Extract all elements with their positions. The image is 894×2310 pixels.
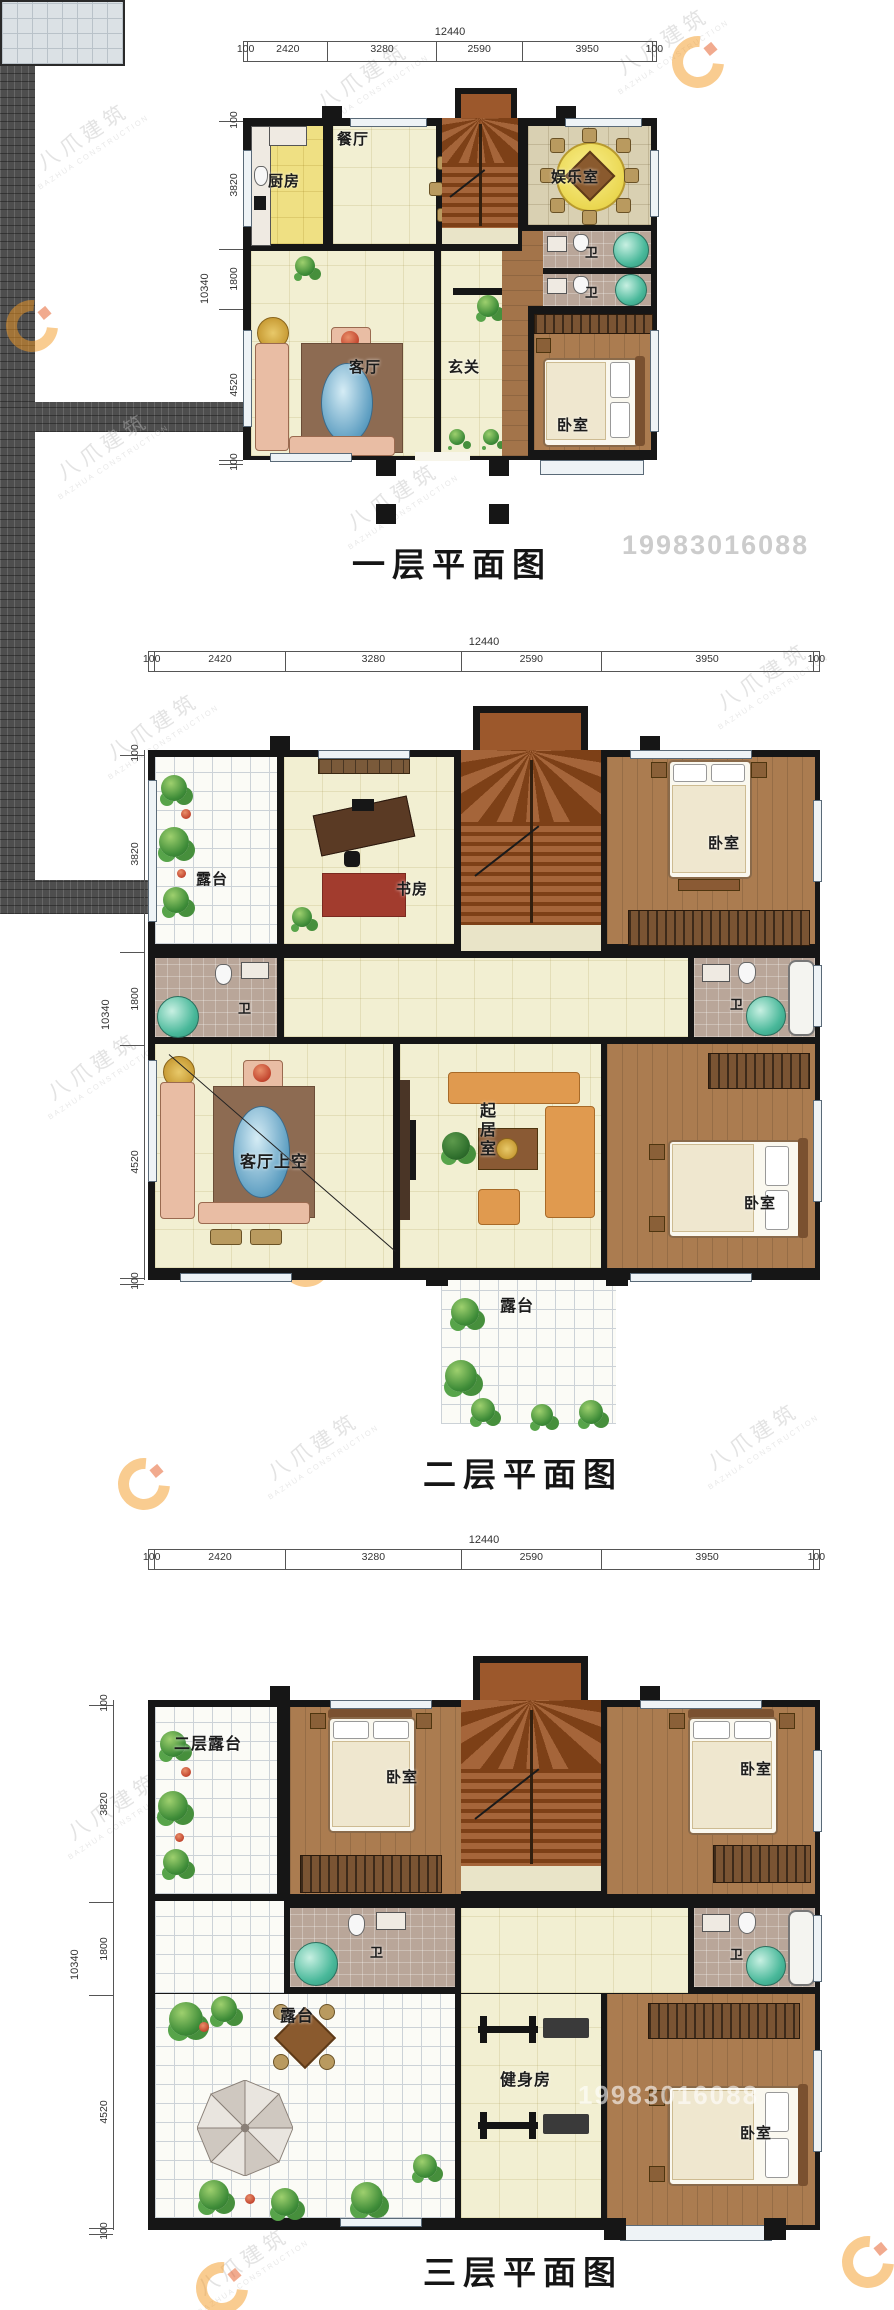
chair [616, 138, 631, 153]
bed-blanket [672, 785, 746, 873]
chair [550, 198, 565, 213]
label-living: 客厅 [349, 356, 381, 377]
corridor-wood [502, 251, 528, 456]
floor2-plan: 露台 书房 卧室 卫 卫 客厅上空 起居室 卧室 [148, 750, 820, 1280]
label-study: 书房 [396, 878, 428, 899]
gym-plate [529, 2016, 536, 2043]
bathtub [788, 960, 815, 1036]
hallway [284, 958, 688, 1037]
watermark-brand: 八爪建筑BAZHUA CONSTRUCTION [20, 88, 151, 192]
sofa-top [448, 1072, 580, 1104]
dim-seg: 1800 [219, 250, 243, 311]
room-bedroom [534, 314, 651, 450]
pillow [673, 764, 707, 782]
floor2-left-dimensions: 10340 100 3820 1800 4520 100 [120, 750, 145, 1280]
terrace-plants [159, 827, 189, 857]
chair [582, 210, 597, 225]
dim-seg: 3280 [286, 1550, 462, 1569]
dim-total-width: 12440 [243, 26, 657, 42]
nightstand [649, 2166, 665, 2182]
kitchen-sink [254, 166, 268, 186]
floor3-left-dimensions: 10340 100 3820 1800 4520 100 [89, 1700, 114, 2230]
desk-monitor [352, 799, 374, 811]
dim-seg: 3950 [602, 652, 814, 671]
label-gym: 健身房 [500, 2066, 551, 2090]
stairs [461, 1700, 601, 1891]
bathtub [788, 1910, 815, 1986]
flowers [245, 2194, 255, 2204]
window [813, 1750, 822, 1832]
toilet [738, 1912, 756, 1934]
pillow [734, 1721, 771, 1739]
room-foyer [441, 251, 502, 456]
terrace-plants [413, 2154, 437, 2178]
window [813, 2050, 822, 2152]
terrace-plants [271, 2188, 299, 2216]
ottoman [250, 1229, 282, 1245]
sofa-left [160, 1082, 195, 1219]
ottoman [210, 1229, 242, 1245]
sofa-bottom [198, 1202, 310, 1224]
dim-seg: 2420 [155, 1550, 285, 1569]
nightstand [416, 1713, 432, 1729]
bath-vanity [547, 236, 567, 252]
window [813, 800, 822, 882]
window [270, 453, 352, 462]
nightstand [751, 762, 767, 778]
pillow [610, 402, 630, 438]
wardrobe [713, 1845, 811, 1883]
watermark-logo [661, 25, 734, 98]
table-decor [496, 1138, 518, 1160]
bath-vanity [702, 1914, 730, 1932]
plant [292, 907, 312, 927]
terrace-plants [351, 2182, 383, 2214]
dim-seg: 100 [814, 652, 820, 671]
flowers [175, 1833, 184, 1842]
sofa-right [545, 1106, 595, 1218]
dim-seg: 100 [120, 1279, 144, 1285]
label-dining: 餐厅 [337, 128, 369, 149]
porch-pillar [489, 456, 509, 476]
room-living-hall [251, 251, 434, 456]
dim-total-height: 10340 [100, 750, 112, 1280]
window [813, 1915, 822, 1982]
armchair [478, 1189, 520, 1225]
dim-seg: 100 [89, 2229, 113, 2235]
window [148, 1060, 157, 1182]
terrace-plants [161, 775, 187, 801]
watermark-brand: 八爪建筑BAZHUA CONSTRUCTION [250, 1398, 381, 1502]
dim-seg: 4520 [219, 310, 243, 460]
floor3-plan: 二层露台 卧室 卧室 卫 卫 露台 健身房 卧室 [148, 1700, 820, 2230]
watermark-logo [831, 2225, 894, 2298]
dim-seg: 4520 [120, 1046, 144, 1279]
outdoor-chair [319, 2054, 335, 2070]
toilet [738, 962, 756, 984]
wardrobe [534, 314, 653, 334]
pillow [373, 1721, 409, 1739]
room-bath-left [155, 958, 277, 1037]
label-bedroom-top-center: 卧室 [386, 1766, 418, 1787]
bedroom-window-bay [620, 2225, 772, 2241]
flowers [181, 809, 191, 819]
nightstand [649, 1216, 665, 1232]
label-foyer: 玄关 [448, 356, 480, 377]
dim-seg: 1800 [89, 1903, 113, 1996]
outdoor-chair [273, 2054, 289, 2070]
pilaster [604, 2218, 626, 2240]
tree [483, 429, 499, 445]
chair [582, 128, 597, 143]
porch-pillar [489, 504, 509, 524]
nightstand [651, 762, 667, 778]
floor1-left-dimensions: 10340 100 3820 1800 4520 100 [219, 118, 244, 460]
headboard [798, 1138, 808, 1238]
terrace-plants [451, 1298, 479, 1326]
watermark-logo-dot [149, 1464, 163, 1478]
porch-pillar [376, 456, 396, 476]
floor2-title: 二层平面图 [423, 1448, 623, 1496]
window [630, 1273, 752, 1282]
stair-landing [461, 1866, 601, 1891]
watermark-logo [185, 2251, 258, 2310]
nightstand [779, 1713, 795, 1729]
bath-vanity [702, 964, 730, 982]
pilaster [606, 1268, 628, 1286]
window [350, 118, 427, 127]
watermark-brand: 八爪建筑BAZHUA CONSTRUCTION [690, 1388, 821, 1492]
window [650, 150, 659, 217]
shower [746, 1946, 786, 1986]
kitchen-stove [254, 196, 266, 210]
terrace-plants [163, 1849, 189, 1875]
label-entertainment: 娱乐室 [551, 166, 599, 187]
floor1-title: 一层平面图 [352, 538, 552, 586]
window [650, 330, 659, 432]
window [243, 150, 252, 227]
label-bedroom-top-right: 卧室 [740, 1758, 772, 1779]
flowers [181, 1767, 191, 1777]
entrance-porch [0, 0, 125, 66]
wardrobe [708, 1053, 810, 1089]
roof-tiles [0, 432, 35, 880]
tv [410, 1120, 416, 1180]
bath-vanity [241, 962, 269, 979]
dim-seg: 2590 [437, 42, 523, 61]
stair-rail [530, 760, 533, 923]
entrance-door-opening [415, 452, 470, 461]
dim-seg: 3820 [89, 1706, 113, 1903]
dim-total-width: 12440 [148, 636, 820, 652]
stairs-top-landing [480, 1663, 581, 1703]
study-rug [322, 873, 406, 917]
room-sitting [400, 1044, 601, 1268]
label-bedroom-bottom: 卧室 [744, 1192, 776, 1213]
room-study [284, 757, 454, 944]
nightstand [310, 1713, 326, 1729]
dim-seg: 100 [653, 42, 657, 61]
window [630, 750, 752, 759]
dining-chair [429, 182, 443, 196]
dim-seg: 3280 [328, 42, 436, 61]
floor1-plan: 厨房 餐厅 娱乐室 卫 卫 客厅 玄关 卧室 [243, 118, 657, 460]
shower [157, 996, 199, 1038]
shower [294, 1942, 338, 1986]
room-bath-right [694, 1908, 815, 1987]
window [148, 780, 157, 922]
terrace-plants [199, 2180, 229, 2210]
desk-chair [344, 851, 360, 867]
headboard [635, 356, 645, 446]
tv-wall [400, 1080, 410, 1220]
dim-seg: 4520 [89, 1996, 113, 2229]
toilet [348, 1914, 365, 1936]
pilaster [426, 1268, 448, 1286]
stair-rail [479, 124, 482, 226]
plant [295, 256, 315, 276]
label-bedroom: 卧室 [557, 414, 589, 435]
chair [624, 168, 639, 183]
wardrobe [628, 910, 810, 946]
stairs-top-landing [480, 713, 581, 753]
floor3-top-dimensions: 12440 100 2420 3280 2590 3950 100 [148, 1534, 820, 1570]
gym-bench [543, 2114, 589, 2134]
dim-segments: 100 2420 3280 2590 3950 100 [148, 652, 820, 672]
chair [550, 138, 565, 153]
sofa-left [255, 343, 289, 451]
dim-total-height: 10340 [199, 118, 211, 460]
gym-plate [480, 2112, 487, 2139]
watermark-logo-dot [227, 2268, 241, 2282]
room-bedroom-bottom [607, 1044, 815, 1268]
armchair-cushion [253, 1064, 271, 1082]
label-bedroom-bottom: 卧室 [740, 2122, 772, 2143]
dim-seg: 3950 [602, 1550, 814, 1569]
pillow [765, 2138, 789, 2178]
floor-plan-sheet: 八爪建筑BAZHUA CONSTRUCTION 八爪建筑BAZHUA CONST… [0, 0, 894, 2310]
roof-tiles [0, 66, 35, 234]
pillow [693, 1721, 730, 1739]
label-bath-right: 卫 [730, 994, 744, 1013]
label-bath-lower: 卫 [585, 282, 599, 301]
toilet [215, 964, 232, 985]
porch-pillar [376, 504, 396, 524]
stairs-top-landing [461, 94, 511, 120]
dim-seg: 2590 [462, 1550, 601, 1569]
dim-seg: 3950 [523, 42, 653, 61]
label-kitchen: 厨房 [268, 170, 300, 191]
flowers [177, 869, 186, 878]
hallway [461, 1908, 688, 1993]
dim-seg: 100 [148, 652, 155, 671]
palm-plant [442, 1132, 470, 1160]
window [180, 1273, 292, 1282]
dim-seg: 100 [814, 1550, 820, 1569]
headboard [798, 2084, 808, 2186]
dim-seg: 1800 [120, 953, 144, 1046]
window [813, 965, 822, 1027]
stair-landing [442, 228, 518, 244]
pillow [610, 362, 630, 398]
dim-seg: 2420 [248, 42, 328, 61]
pilaster [764, 2218, 786, 2240]
shower [615, 274, 647, 306]
window [340, 2218, 422, 2227]
watermark-logo-dot [37, 306, 51, 320]
dim-seg: 100 [148, 1550, 155, 1569]
room-bath-right [694, 958, 815, 1037]
dim-segments: 100 2420 3280 2590 3950 100 [148, 1550, 820, 1570]
watermark-logo [107, 1447, 180, 1520]
pillow [765, 1146, 789, 1186]
room-terrace-upper [155, 1901, 284, 1993]
window [318, 750, 410, 759]
chair [616, 198, 631, 213]
room-terrace-top [155, 757, 277, 944]
label-terrace-top: 二层露台 [174, 1730, 242, 1754]
room-bedroom-top-center [290, 1707, 461, 1894]
dim-seg: 100 [219, 461, 243, 465]
outdoor-chair [319, 2004, 335, 2020]
bed-blanket [692, 1741, 772, 1829]
gym-plate [480, 2016, 487, 2043]
bed-blanket [672, 1144, 754, 1232]
bath-vanity [547, 278, 567, 294]
label-bath-upper: 卫 [585, 242, 599, 261]
label-terrace: 露台 [280, 2002, 314, 2026]
dim-total-width: 12440 [148, 1534, 820, 1550]
wardrobe [648, 2003, 800, 2039]
window [813, 1100, 822, 1202]
flowers [199, 2022, 209, 2032]
stair-landing [461, 925, 601, 951]
label-bath-right: 卫 [730, 1944, 744, 1963]
window [565, 118, 642, 127]
dim-seg: 2590 [462, 652, 601, 671]
terrace-plants [579, 1400, 603, 1424]
terrace-plants [169, 2002, 203, 2036]
label-bedroom-top: 卧室 [708, 832, 740, 853]
floor3-title: 三层平面图 [423, 2246, 623, 2294]
dim-segments: 100 2420 3280 2590 3950 100 [243, 42, 657, 62]
terrace-plants [211, 1996, 237, 2022]
nightstand [649, 1144, 665, 1160]
bedroom-terrace-strip [540, 460, 644, 475]
dim-seg: 3820 [120, 756, 144, 953]
window [243, 330, 252, 427]
dim-total-height: 10340 [69, 1700, 81, 2230]
window [330, 1700, 432, 1709]
bath-vanity [376, 1912, 406, 1930]
stair-rail [530, 1710, 533, 1865]
floor2-top-dimensions: 12440 100 2420 3280 2590 3950 100 [148, 636, 820, 672]
watermark-logo-dot [873, 2242, 887, 2256]
label-terrace-bottom: 露台 [500, 1292, 534, 1316]
window [640, 1700, 762, 1709]
kitchen-counter [269, 126, 307, 146]
nightstand [536, 338, 551, 353]
terrace-plants [531, 1404, 553, 1426]
foyer-plant [477, 295, 499, 317]
watermark-phone: 19983016088 [578, 2080, 759, 2111]
label-sitting: 起居室 [473, 1102, 497, 1159]
shower [746, 996, 786, 1036]
label-terrace-top: 露台 [196, 868, 228, 889]
terrace-plants [445, 1360, 477, 1392]
pillow [711, 764, 745, 782]
pillow [333, 1721, 369, 1739]
dim-seg: 2420 [155, 652, 285, 671]
stairs [461, 750, 601, 951]
label-bath-left: 卫 [370, 1942, 384, 1961]
watermark-phone: 19983016088 [622, 530, 809, 561]
room-bedroom-top-right [607, 1707, 815, 1894]
shower [613, 232, 649, 268]
tree [449, 429, 465, 445]
label-living-void: 客厅上空 [240, 1148, 308, 1172]
watermark-logo-dot [703, 42, 717, 56]
dim-seg: 3280 [286, 652, 462, 671]
terrace-plants [163, 887, 189, 913]
terrace-plants [158, 1791, 188, 1821]
gym-plate [529, 2112, 536, 2139]
stairs [442, 118, 518, 244]
wardrobe [300, 1855, 442, 1893]
dim-seg: 3820 [219, 122, 243, 249]
room-terrace [155, 1994, 455, 2218]
gym-bench [543, 2018, 589, 2038]
nightstand [669, 1713, 685, 1729]
floor1-top-dimensions: 12440 100 2420 3280 2590 3950 100 [243, 26, 657, 62]
terrace-plants [471, 1398, 495, 1422]
label-bath-left: 卫 [238, 998, 252, 1017]
bed-bench [678, 879, 740, 891]
patio-umbrella [197, 2080, 293, 2176]
bookshelf [318, 759, 410, 774]
